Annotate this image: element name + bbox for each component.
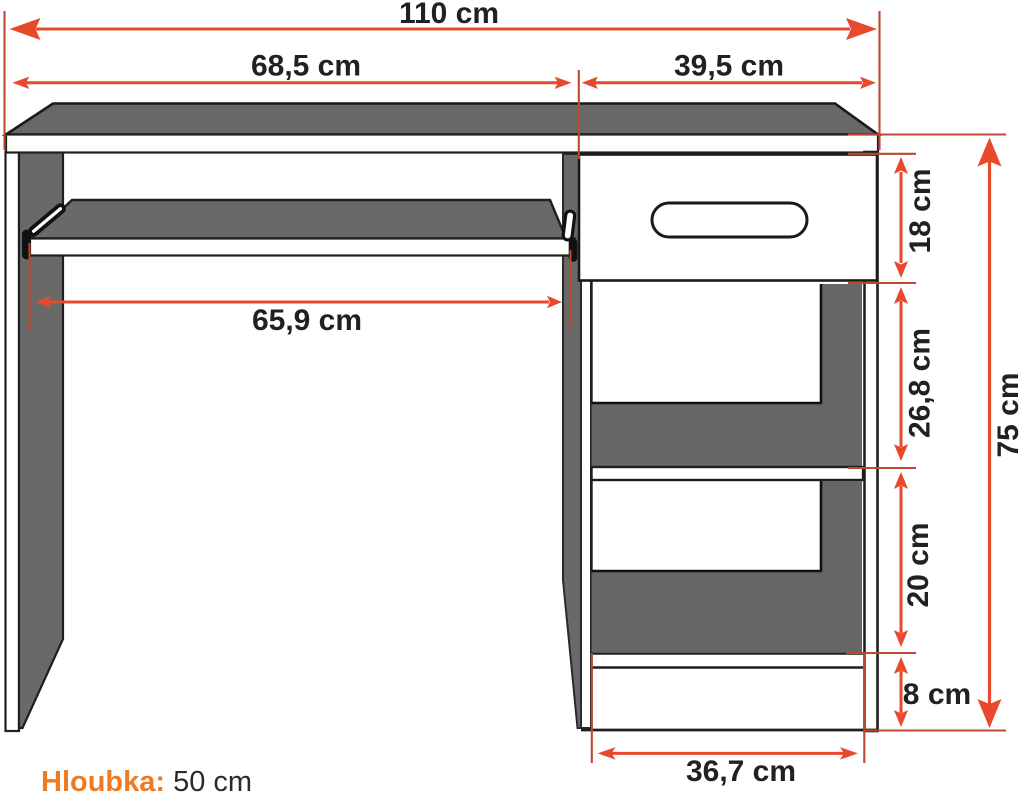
svg-text:8 cm: 8 cm — [903, 678, 971, 711]
svg-text:68,5 cm: 68,5 cm — [251, 50, 361, 83]
svg-text:65,9 cm: 65,9 cm — [252, 304, 362, 337]
svg-text:36,7 cm: 36,7 cm — [686, 755, 796, 788]
svg-text:Hloubka: 50 cm: Hloubka: 50 cm — [41, 766, 252, 795]
svg-text:39,5 cm: 39,5 cm — [674, 50, 784, 83]
svg-text:75 cm: 75 cm — [992, 372, 1020, 457]
svg-text:20 cm: 20 cm — [902, 522, 935, 607]
svg-text:110 cm: 110 cm — [399, 0, 499, 30]
svg-text:26,8 cm: 26,8 cm — [904, 328, 937, 438]
svg-text:18 cm: 18 cm — [904, 168, 937, 253]
